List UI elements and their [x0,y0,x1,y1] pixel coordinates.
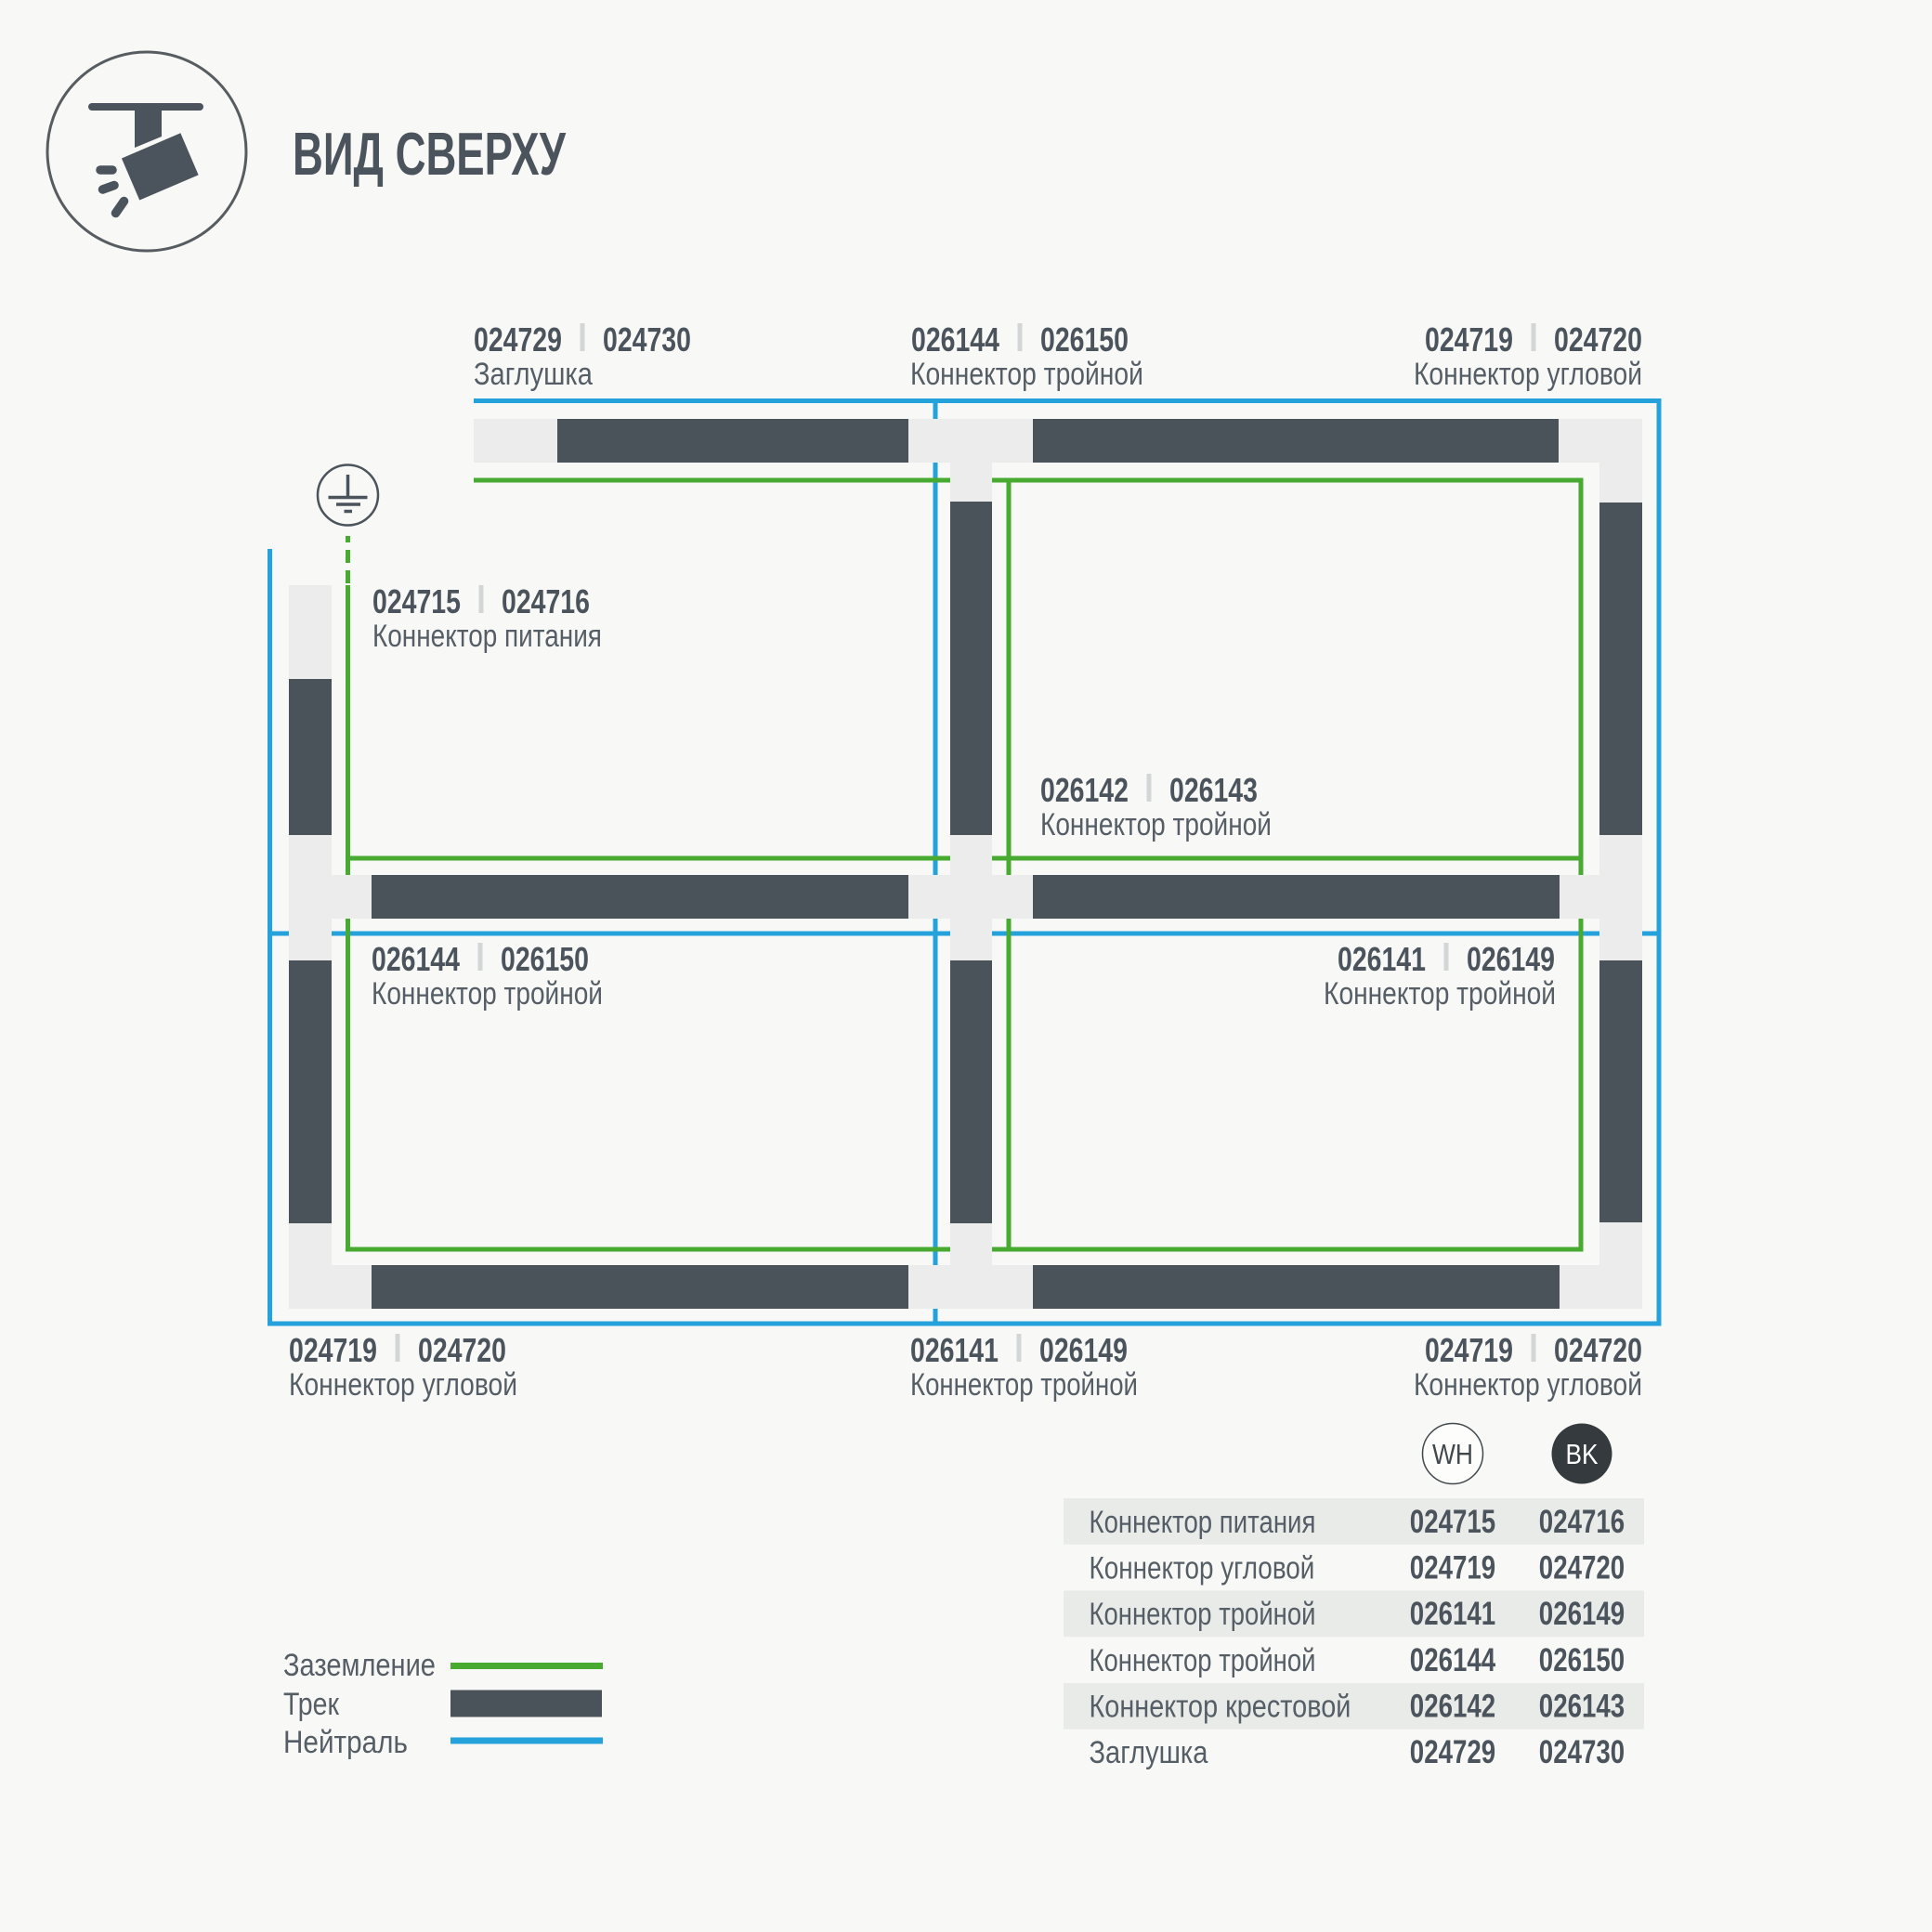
svg-text:026143: 026143 [1169,771,1258,809]
svg-text:026149: 026149 [1539,1595,1625,1632]
svg-text:Коннектор тройной: Коннектор тройной [1040,806,1272,842]
svg-text:024720: 024720 [418,1331,506,1369]
svg-text:024716: 024716 [502,582,590,620]
svg-text:Заглушка: Заглушка [474,356,593,392]
svg-text:Нейтраль: Нейтраль [283,1724,408,1759]
svg-text:026141: 026141 [1410,1595,1495,1632]
svg-text:026149: 026149 [1039,1331,1128,1369]
svg-text:024715: 024715 [1410,1503,1495,1540]
svg-text:026150: 026150 [1539,1641,1625,1678]
svg-text:Коннектор питания: Коннектор питания [372,618,602,653]
svg-text:026144: 026144 [911,320,1000,359]
svg-text:Коннектор тройной: Коннектор тройной [910,357,1143,392]
svg-text:026143: 026143 [1539,1687,1625,1724]
svg-text:026150: 026150 [501,940,589,978]
svg-text:Коннектор угловой: Коннектор угловой [1090,1550,1315,1586]
svg-text:ВИД СВЕРХУ: ВИД СВЕРХУ [293,120,567,188]
svg-text:026150: 026150 [1040,320,1129,359]
svg-text:Коннектор питания: Коннектор питания [1090,1504,1316,1539]
svg-text:BK: BK [1566,1439,1599,1471]
svg-text:Коннектор угловой: Коннектор угловой [289,1367,517,1403]
svg-text:024730: 024730 [1539,1733,1625,1770]
svg-text:Коннектор тройной: Коннектор тройной [1090,1642,1316,1677]
svg-text:Заземление: Заземление [283,1647,436,1683]
svg-text:Трек: Трек [283,1687,339,1722]
svg-text:024716: 024716 [1539,1503,1625,1540]
svg-text:Коннектор угловой: Коннектор угловой [1414,1367,1642,1403]
svg-text:024720: 024720 [1539,1548,1625,1586]
svg-text:024730: 024730 [603,320,691,359]
svg-text:024720: 024720 [1554,320,1642,359]
svg-text:WH: WH [1432,1439,1473,1470]
svg-text:026144: 026144 [372,940,461,978]
svg-text:026144: 026144 [1410,1641,1496,1678]
svg-text:026149: 026149 [1467,940,1555,978]
svg-text:Коннектор тройной: Коннектор тройной [1090,1596,1316,1631]
svg-text:024729: 024729 [1410,1733,1495,1770]
svg-text:Заглушка: Заглушка [1090,1734,1208,1770]
svg-text:024719: 024719 [1425,1331,1513,1369]
svg-text:026142: 026142 [1410,1687,1495,1724]
svg-text:024719: 024719 [1410,1548,1495,1586]
svg-text:024719: 024719 [289,1331,377,1369]
svg-text:Коннектор тройной: Коннектор тройной [372,975,603,1011]
svg-text:Коннектор крестовой: Коннектор крестовой [1090,1688,1351,1724]
svg-text:024729: 024729 [474,320,562,359]
svg-text:024720: 024720 [1554,1331,1642,1369]
svg-text:026141: 026141 [1338,940,1426,978]
svg-text:024719: 024719 [1425,320,1513,359]
svg-text:026142: 026142 [1040,771,1129,809]
svg-text:Коннектор тройной: Коннектор тройной [910,1366,1138,1402]
svg-text:024715: 024715 [372,582,461,620]
svg-text:Коннектор тройной: Коннектор тройной [1324,976,1556,1012]
svg-text:Коннектор угловой: Коннектор угловой [1414,357,1642,392]
svg-text:026141: 026141 [910,1331,999,1369]
